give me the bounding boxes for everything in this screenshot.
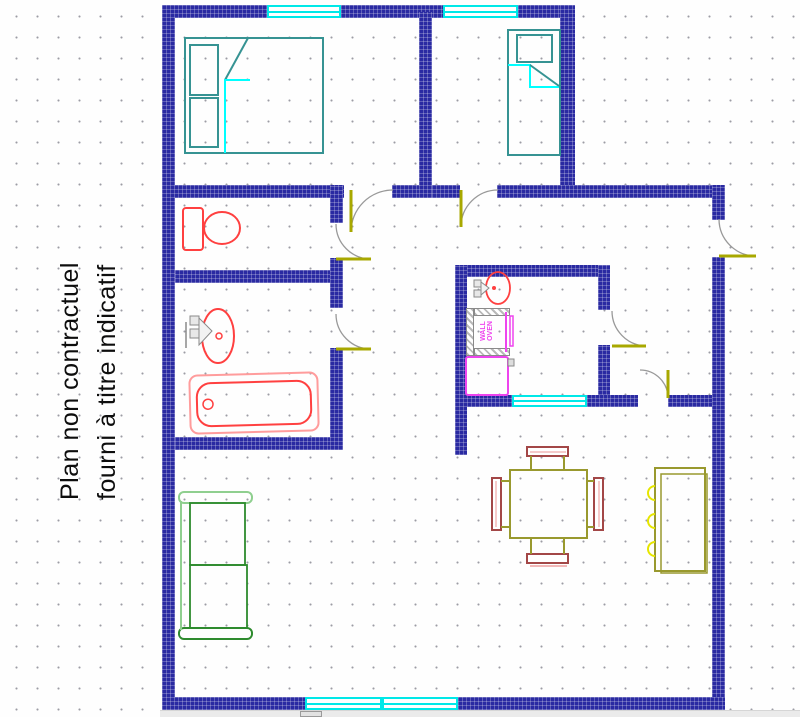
wall-outer-bottom-2 xyxy=(458,697,725,710)
wall-kitchen-right-1 xyxy=(598,265,610,310)
wall-kitchen-top xyxy=(455,265,610,277)
door-living xyxy=(640,370,668,398)
scrollbar-thumb[interactable] xyxy=(300,711,322,717)
wall-bathroom-bottom xyxy=(175,437,343,450)
door-entrance xyxy=(719,219,756,256)
door-wc xyxy=(336,224,371,259)
bathtub xyxy=(189,372,318,433)
bathroom-sink xyxy=(186,309,234,363)
window-kitchen-hatch xyxy=(512,395,587,407)
wall-oven xyxy=(506,312,513,352)
door-kitchen xyxy=(612,311,646,346)
disclaimer-line-1: Plan non contractuel xyxy=(52,230,89,500)
wall-entry-hall-2 xyxy=(668,395,712,407)
door-bathroom xyxy=(336,314,371,349)
door-bedroom1 xyxy=(351,190,393,232)
dining-chair-right xyxy=(587,478,603,530)
sideboard xyxy=(648,468,707,573)
kitchen-faucet-icon xyxy=(474,280,489,297)
wall-hall-top-1 xyxy=(162,185,344,198)
wall-entry-hall-1 xyxy=(610,395,638,407)
plan-disclaimer-text: Plan non contractuel fourni à titre indi… xyxy=(52,230,128,500)
wall-outer-right-lower xyxy=(712,257,725,710)
window-living-left xyxy=(305,697,382,710)
wall-oven-label: WALL OVEN xyxy=(474,310,500,352)
wall-wc-right-2 xyxy=(330,258,343,308)
dining-chair-bottom xyxy=(527,538,568,566)
dining-table xyxy=(510,470,587,538)
wall-kitchen-bottom-1 xyxy=(455,395,512,407)
toilet xyxy=(183,208,240,250)
bathroom-faucet-icon xyxy=(186,316,212,348)
disclaimer-line-2: fourni à titre indicatif xyxy=(89,230,126,500)
horizontal-scrollbar[interactable] xyxy=(160,710,800,717)
kitchen-fridge xyxy=(466,357,514,395)
wall-bedroom-divider xyxy=(419,12,432,198)
window-bedroom1 xyxy=(267,5,341,18)
door-bedroom2 xyxy=(461,190,498,227)
dining-chair-top xyxy=(527,447,568,470)
wall-bedroom2-right xyxy=(560,5,575,198)
wall-outer-left xyxy=(162,5,175,710)
wall-wc-bottom xyxy=(175,270,330,283)
wall-oven-frame-left xyxy=(466,308,474,356)
wall-wc-right-1 xyxy=(330,185,343,223)
dining-chair-left xyxy=(492,478,510,530)
single-bed xyxy=(508,30,560,155)
double-bed xyxy=(185,38,323,153)
wall-outer-right-upper xyxy=(712,185,725,220)
wall-outer-bottom-1 xyxy=(162,697,305,710)
sofa xyxy=(179,492,252,639)
floor-plan-canvas: Plan non contractuel fourni à titre indi… xyxy=(0,0,800,717)
window-bedroom2 xyxy=(443,5,518,18)
wall-kitchen-left xyxy=(455,265,467,455)
wall-kitchen-bottom-2 xyxy=(587,395,610,407)
wall-bathroom-right xyxy=(330,348,343,450)
wall-outer-top-1 xyxy=(162,5,267,18)
window-living-right xyxy=(382,697,458,710)
wall-hall-top-3 xyxy=(497,185,718,198)
